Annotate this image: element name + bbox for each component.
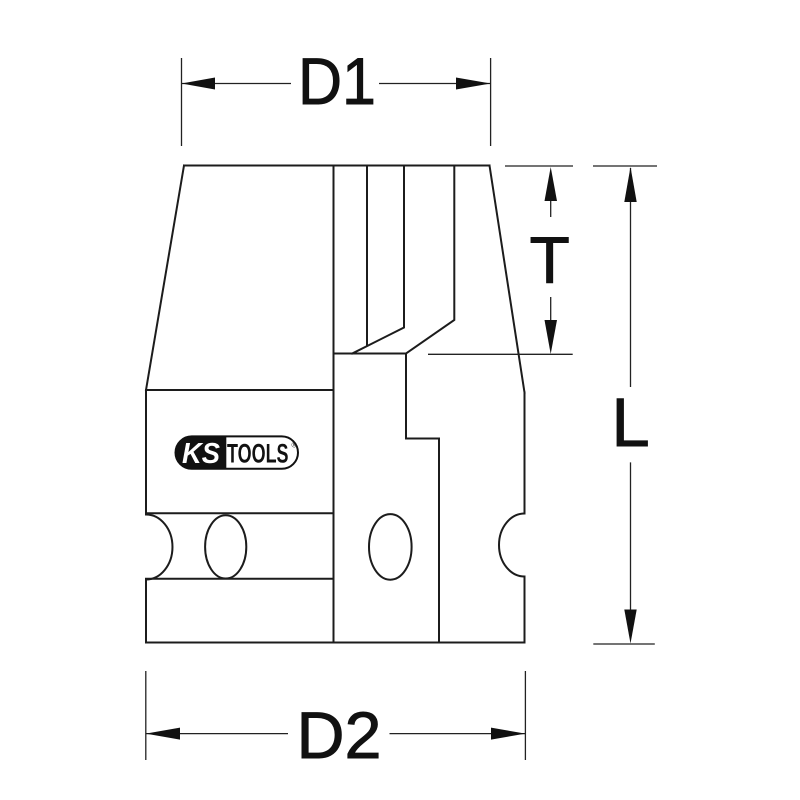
svg-text:D1: D1 [298,44,376,118]
svg-text:D2: D2 [297,698,382,772]
svg-text:T: T [530,223,570,297]
svg-text:TOOLS: TOOLS [227,439,289,469]
svg-text:KS: KS [182,438,221,470]
svg-text:®: ® [292,442,298,450]
svg-text:L: L [611,384,649,461]
